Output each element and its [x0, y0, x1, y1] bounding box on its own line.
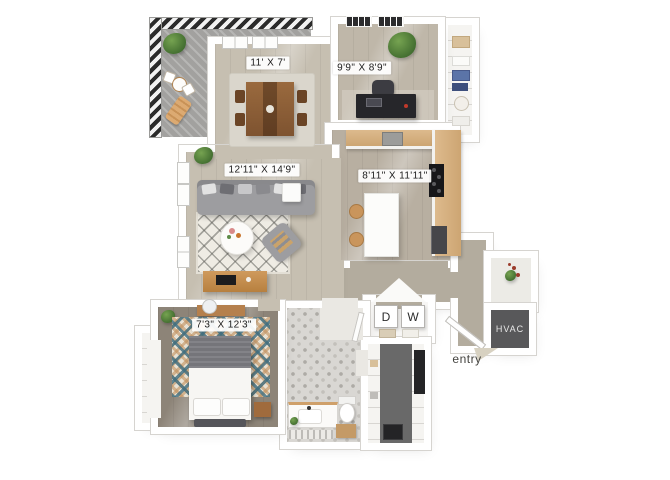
opening-bedroom-closet [147, 340, 161, 418]
kitchen-island [364, 193, 399, 257]
washer: W [401, 305, 425, 328]
linen-stack [452, 116, 470, 126]
bed-duvet [189, 336, 251, 368]
opening-living-bedroom [258, 299, 280, 311]
closet-drawer-tower [414, 350, 425, 394]
coffee-table [220, 221, 254, 255]
bed-pillow [222, 398, 250, 416]
bath-mat [289, 430, 333, 439]
room-dimensions-kitchen: 8'11" X 11'11" [358, 170, 431, 183]
desk-accent [404, 104, 408, 108]
closet-basket [370, 360, 378, 367]
coffee-table-flowers [229, 228, 235, 234]
stove-burner [437, 189, 441, 193]
laundry-basket [379, 329, 396, 338]
stove-burner [432, 168, 436, 172]
dresser-mirror [202, 299, 217, 314]
stove-burner [432, 182, 436, 186]
coat-closet-flowers [512, 266, 516, 270]
dining-chair [297, 90, 307, 103]
opening-living-kitchen [325, 158, 341, 262]
balcony-railing-left [150, 18, 161, 137]
closet-basket [370, 392, 378, 399]
sofa-pillow [220, 183, 235, 194]
den-window [378, 16, 404, 27]
room-hvac-closet: HVAC [491, 310, 529, 348]
closet-storage-box [383, 424, 403, 440]
den-window [346, 16, 372, 27]
bed-bench [194, 419, 246, 427]
dining-window [252, 36, 278, 49]
coffee-table-flowers [227, 235, 231, 239]
linen-stack [452, 36, 470, 48]
nightstand [254, 402, 271, 417]
room-dimensions-den: 9'9" X 8'9" [333, 62, 391, 75]
side-table [282, 183, 301, 202]
opening-kitchen-hall [350, 261, 448, 275]
opening-dining-living [215, 145, 332, 159]
sofa-pillow [256, 183, 271, 194]
refrigerator [431, 226, 447, 254]
room-dimensions-bedroom: 7'3" X 12'3" [192, 319, 256, 332]
room-coat-closet [491, 258, 531, 305]
console-decor [246, 277, 251, 282]
floor-plan: HVAC [0, 0, 670, 480]
hvac-label: HVAC [496, 324, 524, 334]
living-room-window [177, 236, 190, 268]
sofa-pillow [201, 183, 216, 195]
laundry-basket [402, 329, 419, 338]
balcony-railing-top [150, 18, 312, 29]
dining-chair [297, 113, 307, 126]
desk-monitor [366, 98, 382, 107]
linen-stack [452, 70, 470, 81]
toilet [339, 403, 355, 423]
dining-chair [235, 113, 245, 126]
coffee-table-flowers [236, 233, 241, 238]
stove-burner [437, 175, 441, 179]
tv [216, 275, 236, 285]
opening-hall-entry [450, 272, 466, 298]
bar-stool [349, 204, 364, 219]
coat-closet-flowers [508, 263, 511, 266]
washer-label: W [407, 310, 418, 324]
opening-living-hall [326, 260, 344, 302]
dryer-label: D [382, 310, 391, 324]
dryer: D [374, 305, 398, 328]
living-room-window [177, 162, 190, 206]
bed-pillow [193, 398, 221, 416]
dining-window [222, 36, 248, 49]
room-dimensions-living: 12'11" X 14'9" [225, 164, 300, 177]
bar-stool [349, 232, 364, 247]
dining-centerpiece [266, 105, 274, 113]
dining-chair [235, 90, 245, 103]
linen-stack [452, 83, 468, 91]
coat-closet-flowers [516, 273, 520, 277]
kitchen-sink [382, 132, 403, 146]
linen-stack [452, 56, 470, 66]
faucet [307, 406, 311, 410]
linen-basket [454, 96, 469, 111]
sink-basin [298, 409, 322, 424]
room-dimensions-dining: 11' X 7' [246, 57, 289, 70]
entry-label: entry [452, 352, 481, 366]
sofa-pillow [238, 184, 252, 194]
bathroom-cabinet [336, 424, 356, 438]
